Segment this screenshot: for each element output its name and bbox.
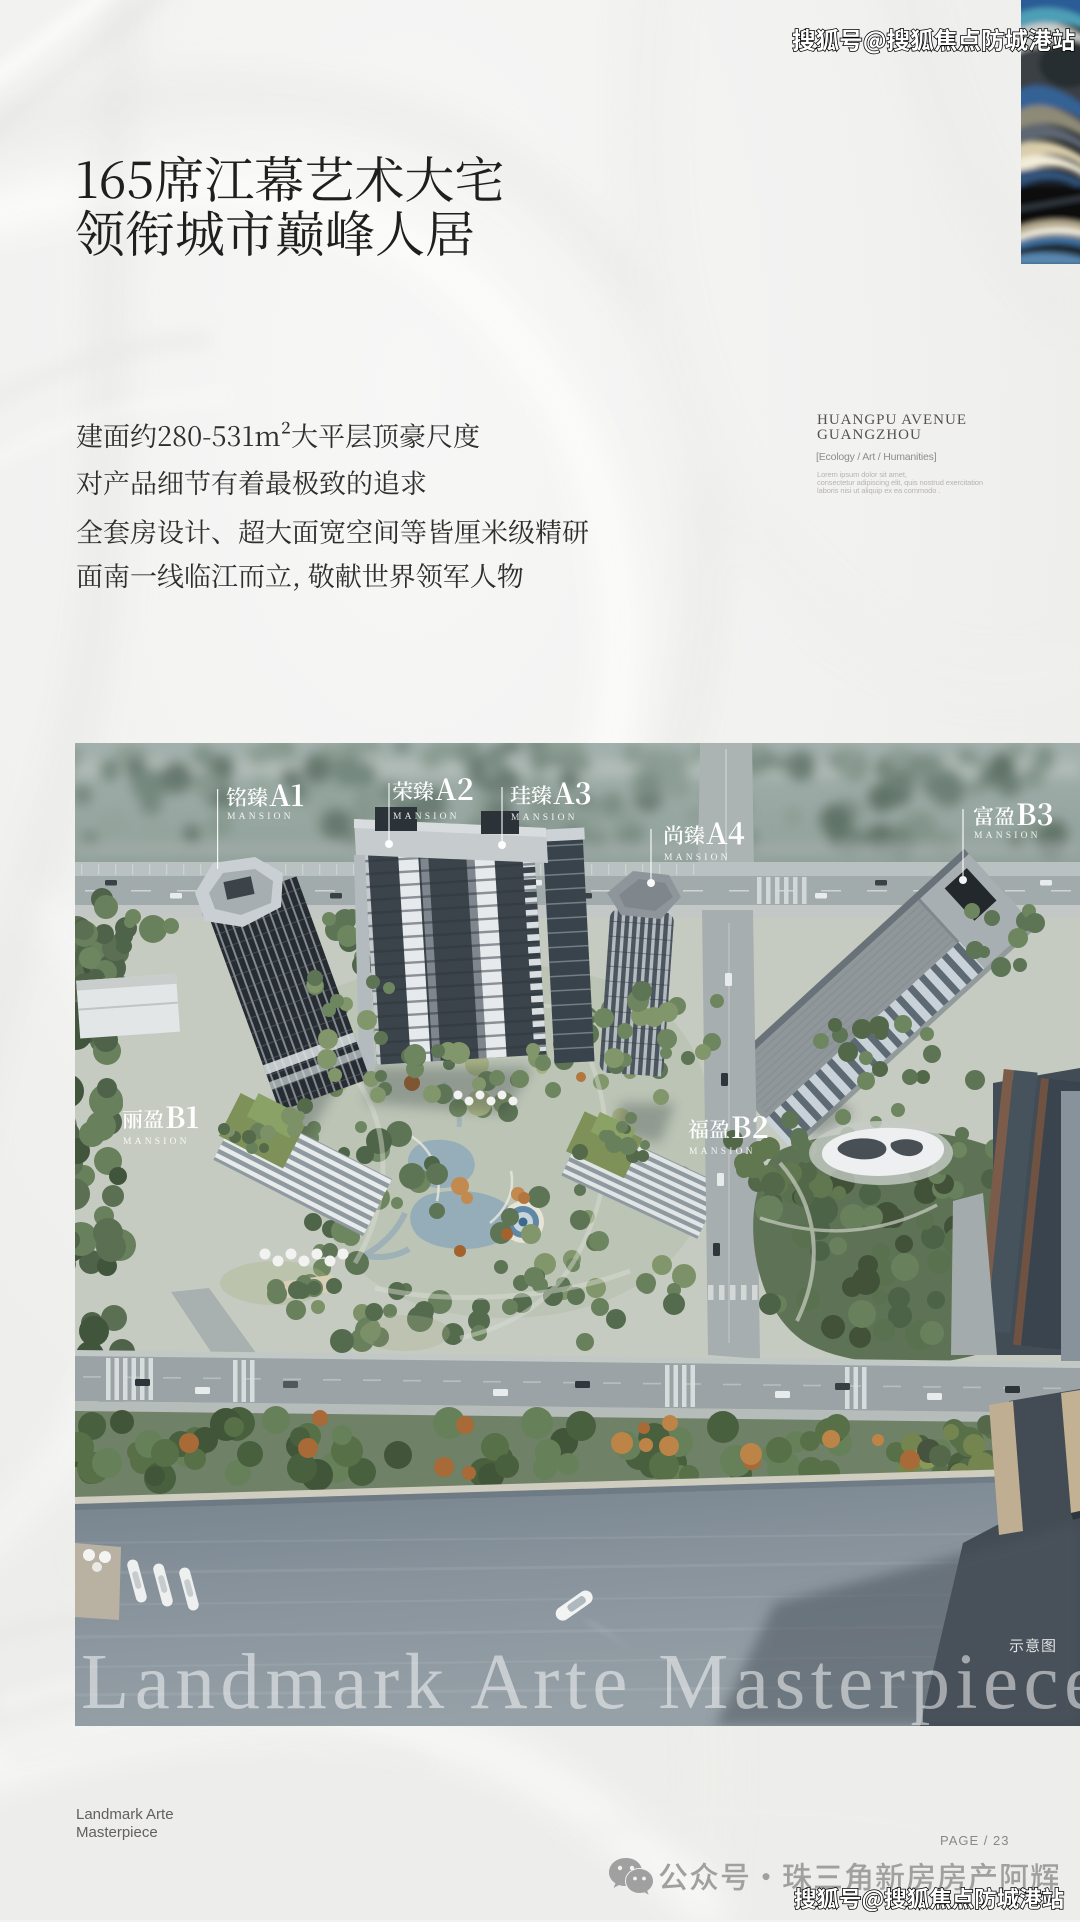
svg-text:Landmark Arte Masterpiece: Landmark Arte Masterpiece bbox=[81, 1639, 1080, 1726]
svg-text:MANSION: MANSION bbox=[689, 1147, 756, 1157]
svg-text:MANSION: MANSION bbox=[393, 812, 460, 822]
svg-text:MANSION: MANSION bbox=[664, 853, 731, 863]
svg-text:MANSION: MANSION bbox=[974, 831, 1041, 841]
svg-text:MANSION: MANSION bbox=[123, 1137, 190, 1147]
svg-text:MANSION: MANSION bbox=[511, 813, 578, 823]
svg-text:MANSION: MANSION bbox=[227, 812, 294, 822]
